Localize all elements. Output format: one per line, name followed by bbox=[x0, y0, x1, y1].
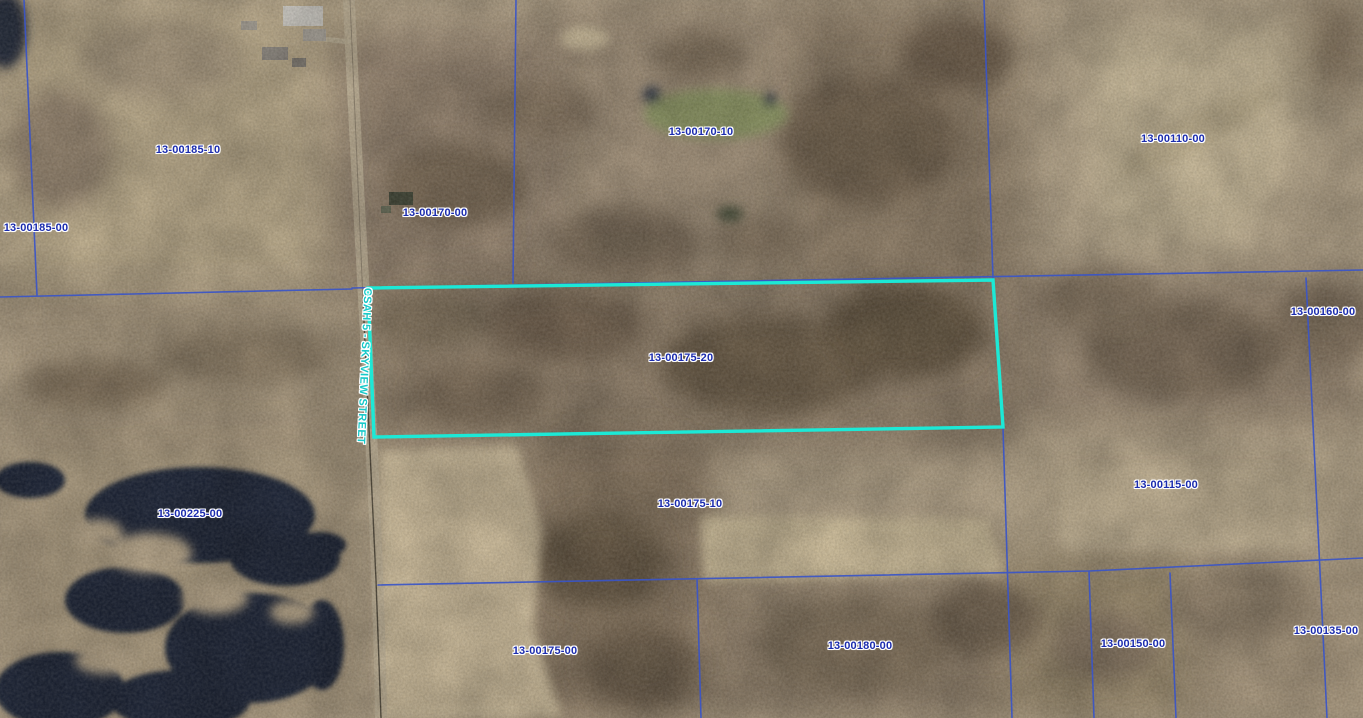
imagery-texture bbox=[0, 0, 1363, 718]
aerial-imagery bbox=[0, 0, 1363, 718]
map-viewport[interactable]: 13-00185-10 13-00185-00 13-00170-00 13-0… bbox=[0, 0, 1363, 718]
